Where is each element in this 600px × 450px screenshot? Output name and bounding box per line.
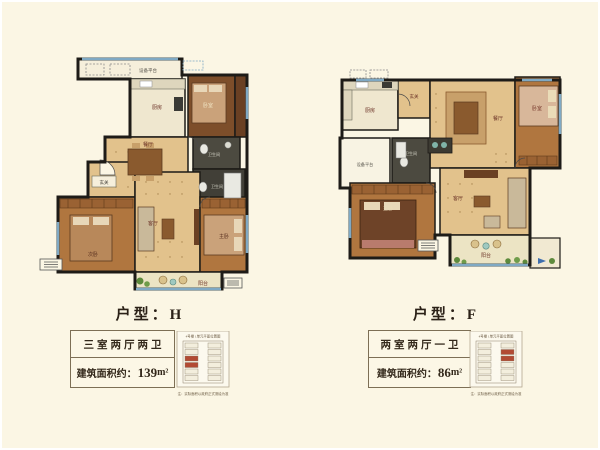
brochure-canvas: 设备平台 厨房 卧室 餐厅 卫生间 卫生间 玄关 次卧 客厅 主卧 阳台 [0,0,600,450]
spec-area-value: 86 [438,365,451,381]
unit-title-H: 户型：H [66,303,234,323]
room-label-bath: 卫生间 [405,150,417,156]
key-plan-H: 4号楼 1单元平面位置图 注：实际面积以政府正式测绘为准 [163,331,243,401]
room-label-bedroom2: 卧室 [532,105,542,112]
room-label-master: 主卧 [383,205,393,212]
room-label-equipment: 设备平台 [357,161,374,168]
room-label-living: 客厅 [453,195,463,202]
room-label-balcony: 阳台 [481,252,491,259]
room-label-kitchen: 厨房 [152,104,162,111]
room-label-bath2: 卫生间 [211,183,223,189]
spec-area-label: 建筑面积约： [377,365,437,380]
decor-icon-green [549,258,555,264]
spec-box-H: 三室两厅两卫 建筑面积约：139m² [70,330,175,388]
floor-plan-F: 厨房 玄关 餐厅 卧室 设备平台 卫生间 主卧 客厅 阳台 [336,64,566,276]
key-plan-note: 注：实际面积以政府正式测绘为准 [178,391,229,396]
spec-area-label: 建筑面积约： [77,365,137,380]
key-plan-note: 注：实际面积以政府正式测绘为准 [471,391,522,396]
spec-area-value: 139 [138,365,158,381]
spec-area-F: 建筑面积约：86m² [369,358,470,387]
key-plan-caption: 4号楼 1单元平面位置图 [479,334,514,339]
room-label-master: 主卧 [219,233,229,240]
room-label-entry: 玄关 [100,179,109,186]
room-label-dining: 餐厅 [493,115,503,122]
room-label-bedroom2: 卧室 [203,102,213,109]
room-label-equipment: 设备平台 [139,67,157,74]
room-label-kitchen: 厨房 [365,107,375,114]
unit-title-F: 户型：F [362,303,530,323]
spec-layout-F: 两室两厅一卫 [369,331,470,358]
floor-plan-H: 设备平台 厨房 卧室 餐厅 卫生间 卫生间 玄关 次卧 客厅 主卧 阳台 [36,57,251,294]
room-label-bedroom1: 次卧 [88,251,98,258]
spec-area-H: 建筑面积约：139m² [71,358,174,387]
room-label-balcony: 阳台 [198,280,208,287]
room-label-dining: 餐厅 [143,141,153,148]
key-plan-F: 4号楼 1单元平面位置图 注：实际面积以政府正式测绘为准 [456,331,536,401]
key-plan-caption: 4号楼 1单元平面位置图 [186,334,221,339]
room-label-living: 客厅 [148,220,158,227]
spec-layout-H: 三室两厅两卫 [71,331,174,358]
room-label-bath1: 卫生间 [208,151,220,157]
room-label-entry: 玄关 [410,93,419,100]
